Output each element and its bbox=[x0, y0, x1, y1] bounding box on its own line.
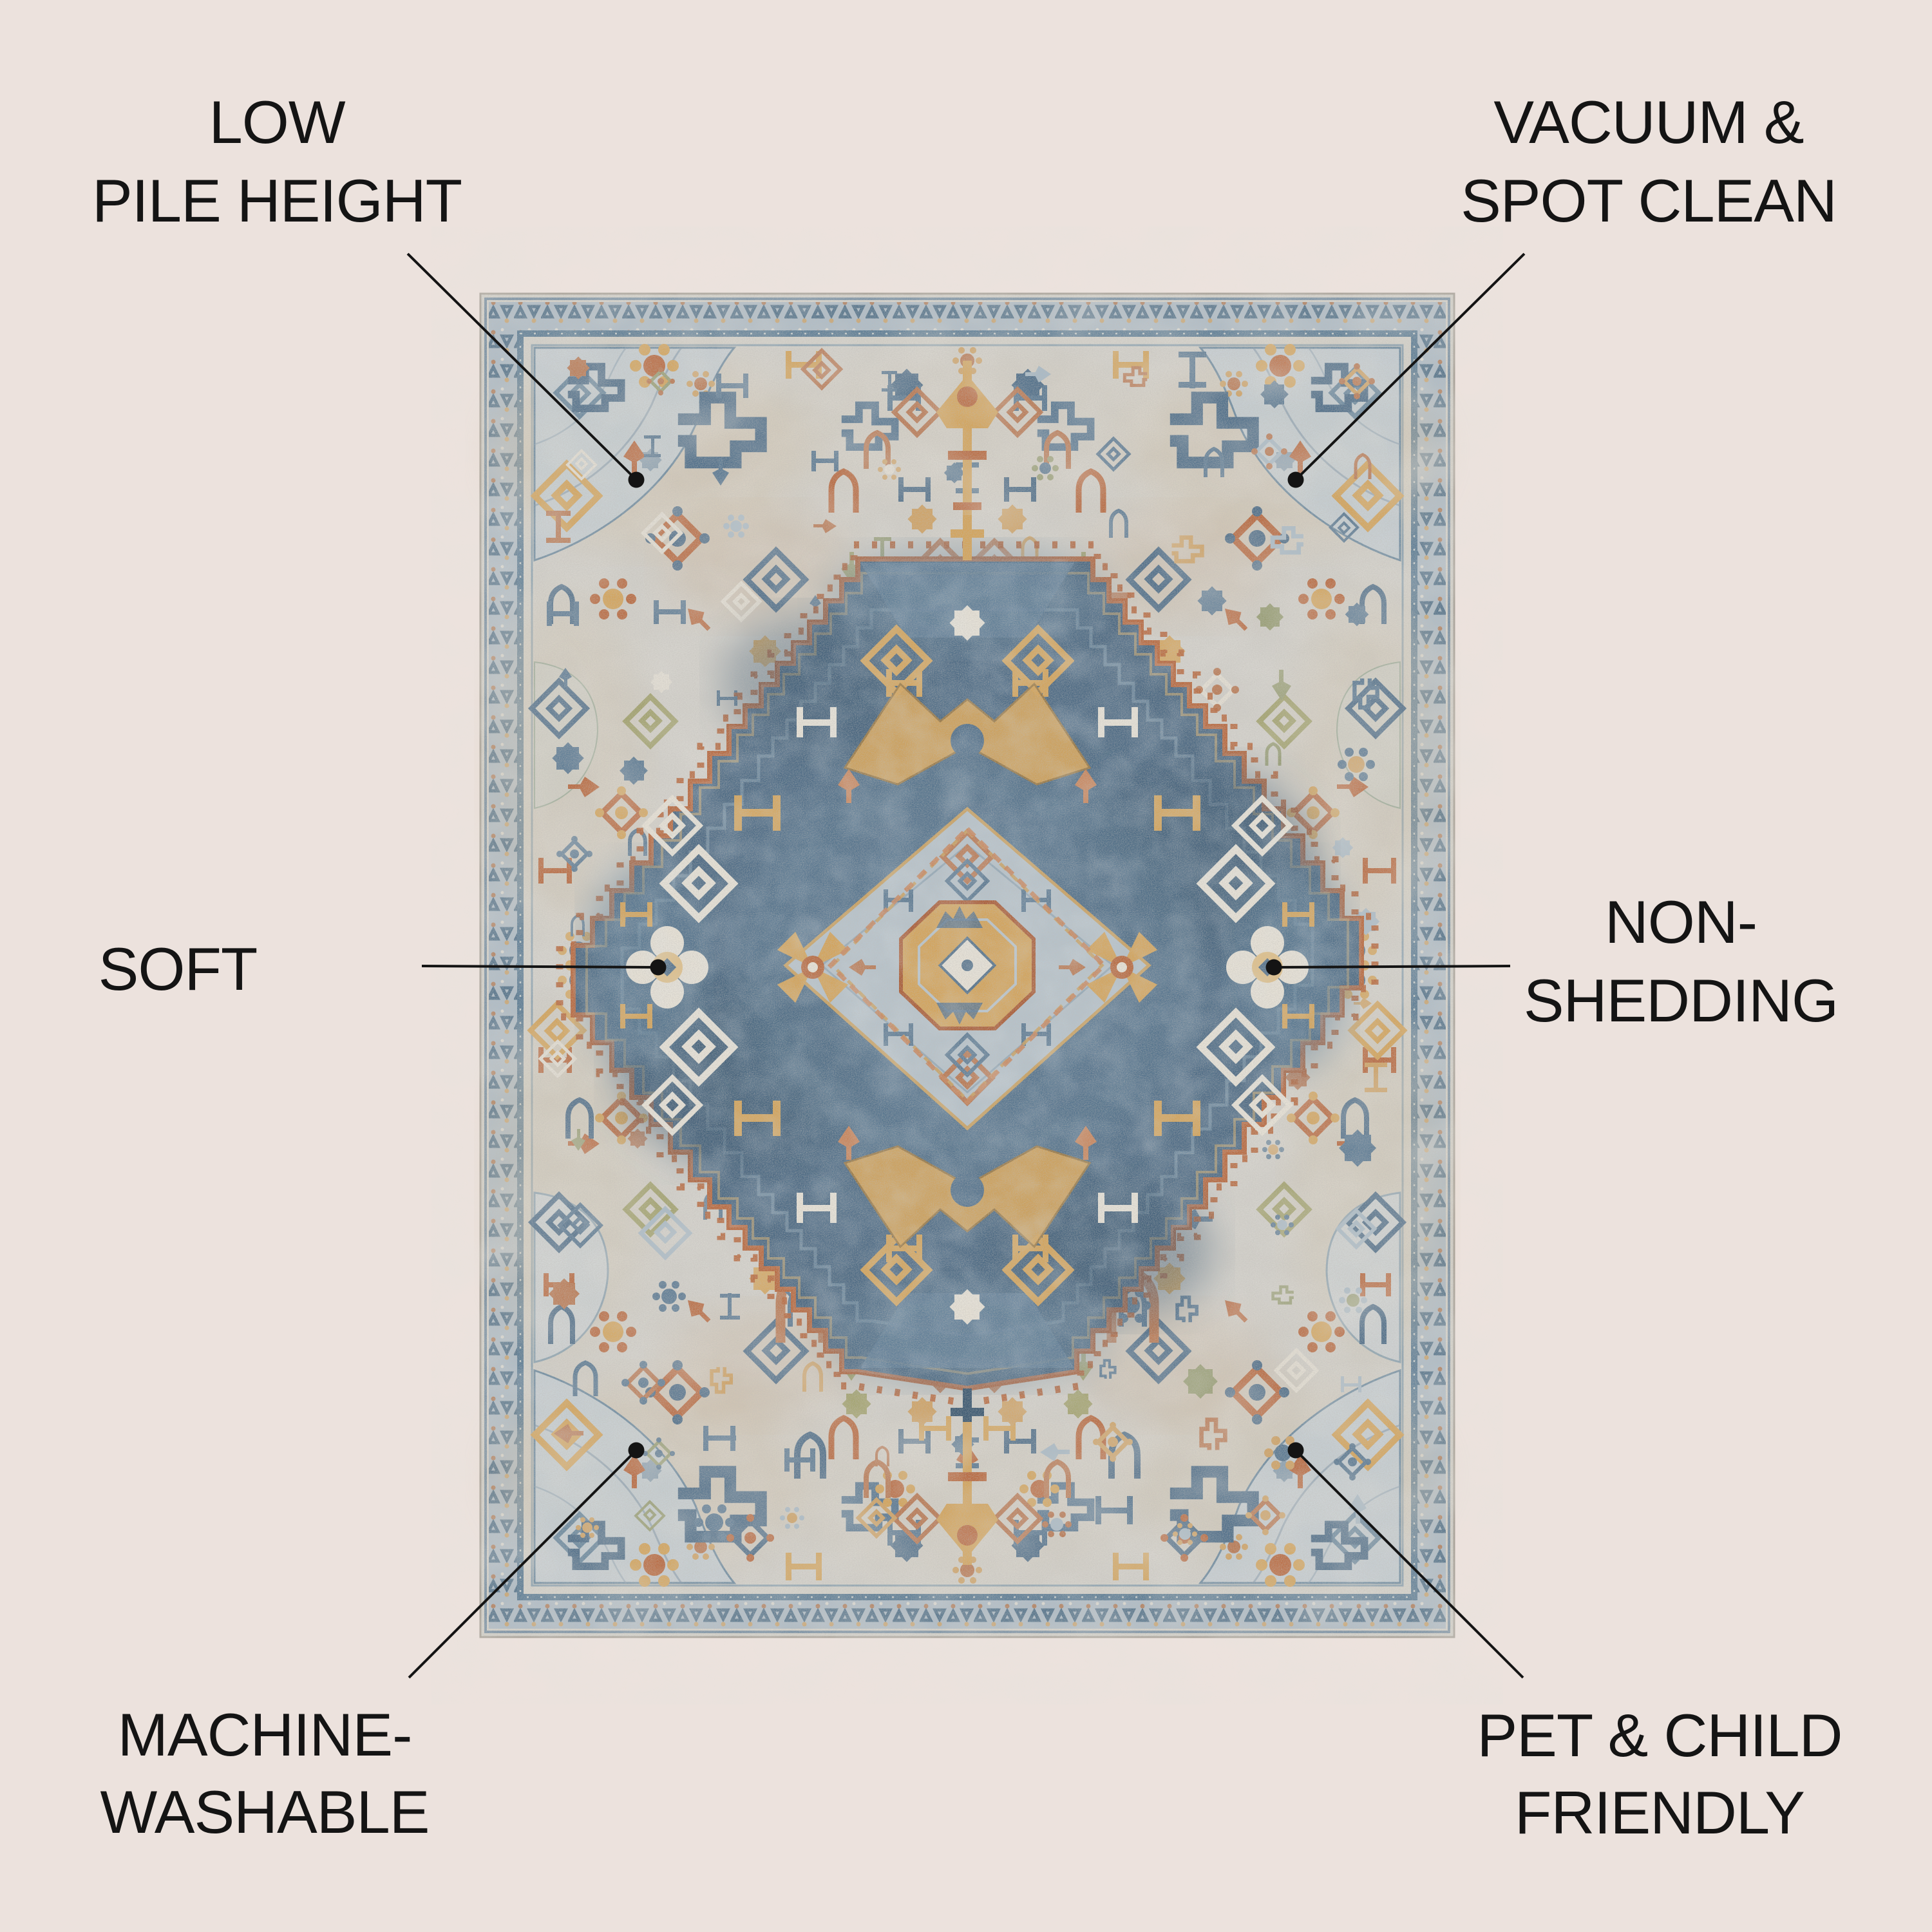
svg-text:PET & CHILD: PET & CHILD bbox=[1477, 1701, 1842, 1769]
svg-text:LOW: LOW bbox=[209, 88, 345, 156]
svg-text:WASHABLE: WASHABLE bbox=[100, 1778, 430, 1846]
svg-text:VACUUM &: VACUUM & bbox=[1493, 88, 1803, 156]
svg-text:SPOT CLEAN: SPOT CLEAN bbox=[1461, 167, 1837, 234]
svg-text:MACHINE-: MACHINE- bbox=[118, 1701, 412, 1768]
svg-text:PILE HEIGHT: PILE HEIGHT bbox=[92, 167, 462, 234]
svg-text:SOFT: SOFT bbox=[99, 935, 258, 1003]
svg-text:SHEDDING: SHEDDING bbox=[1524, 967, 1838, 1034]
svg-text:FRIENDLY: FRIENDLY bbox=[1515, 1779, 1804, 1846]
svg-text:NON-: NON- bbox=[1605, 888, 1757, 956]
